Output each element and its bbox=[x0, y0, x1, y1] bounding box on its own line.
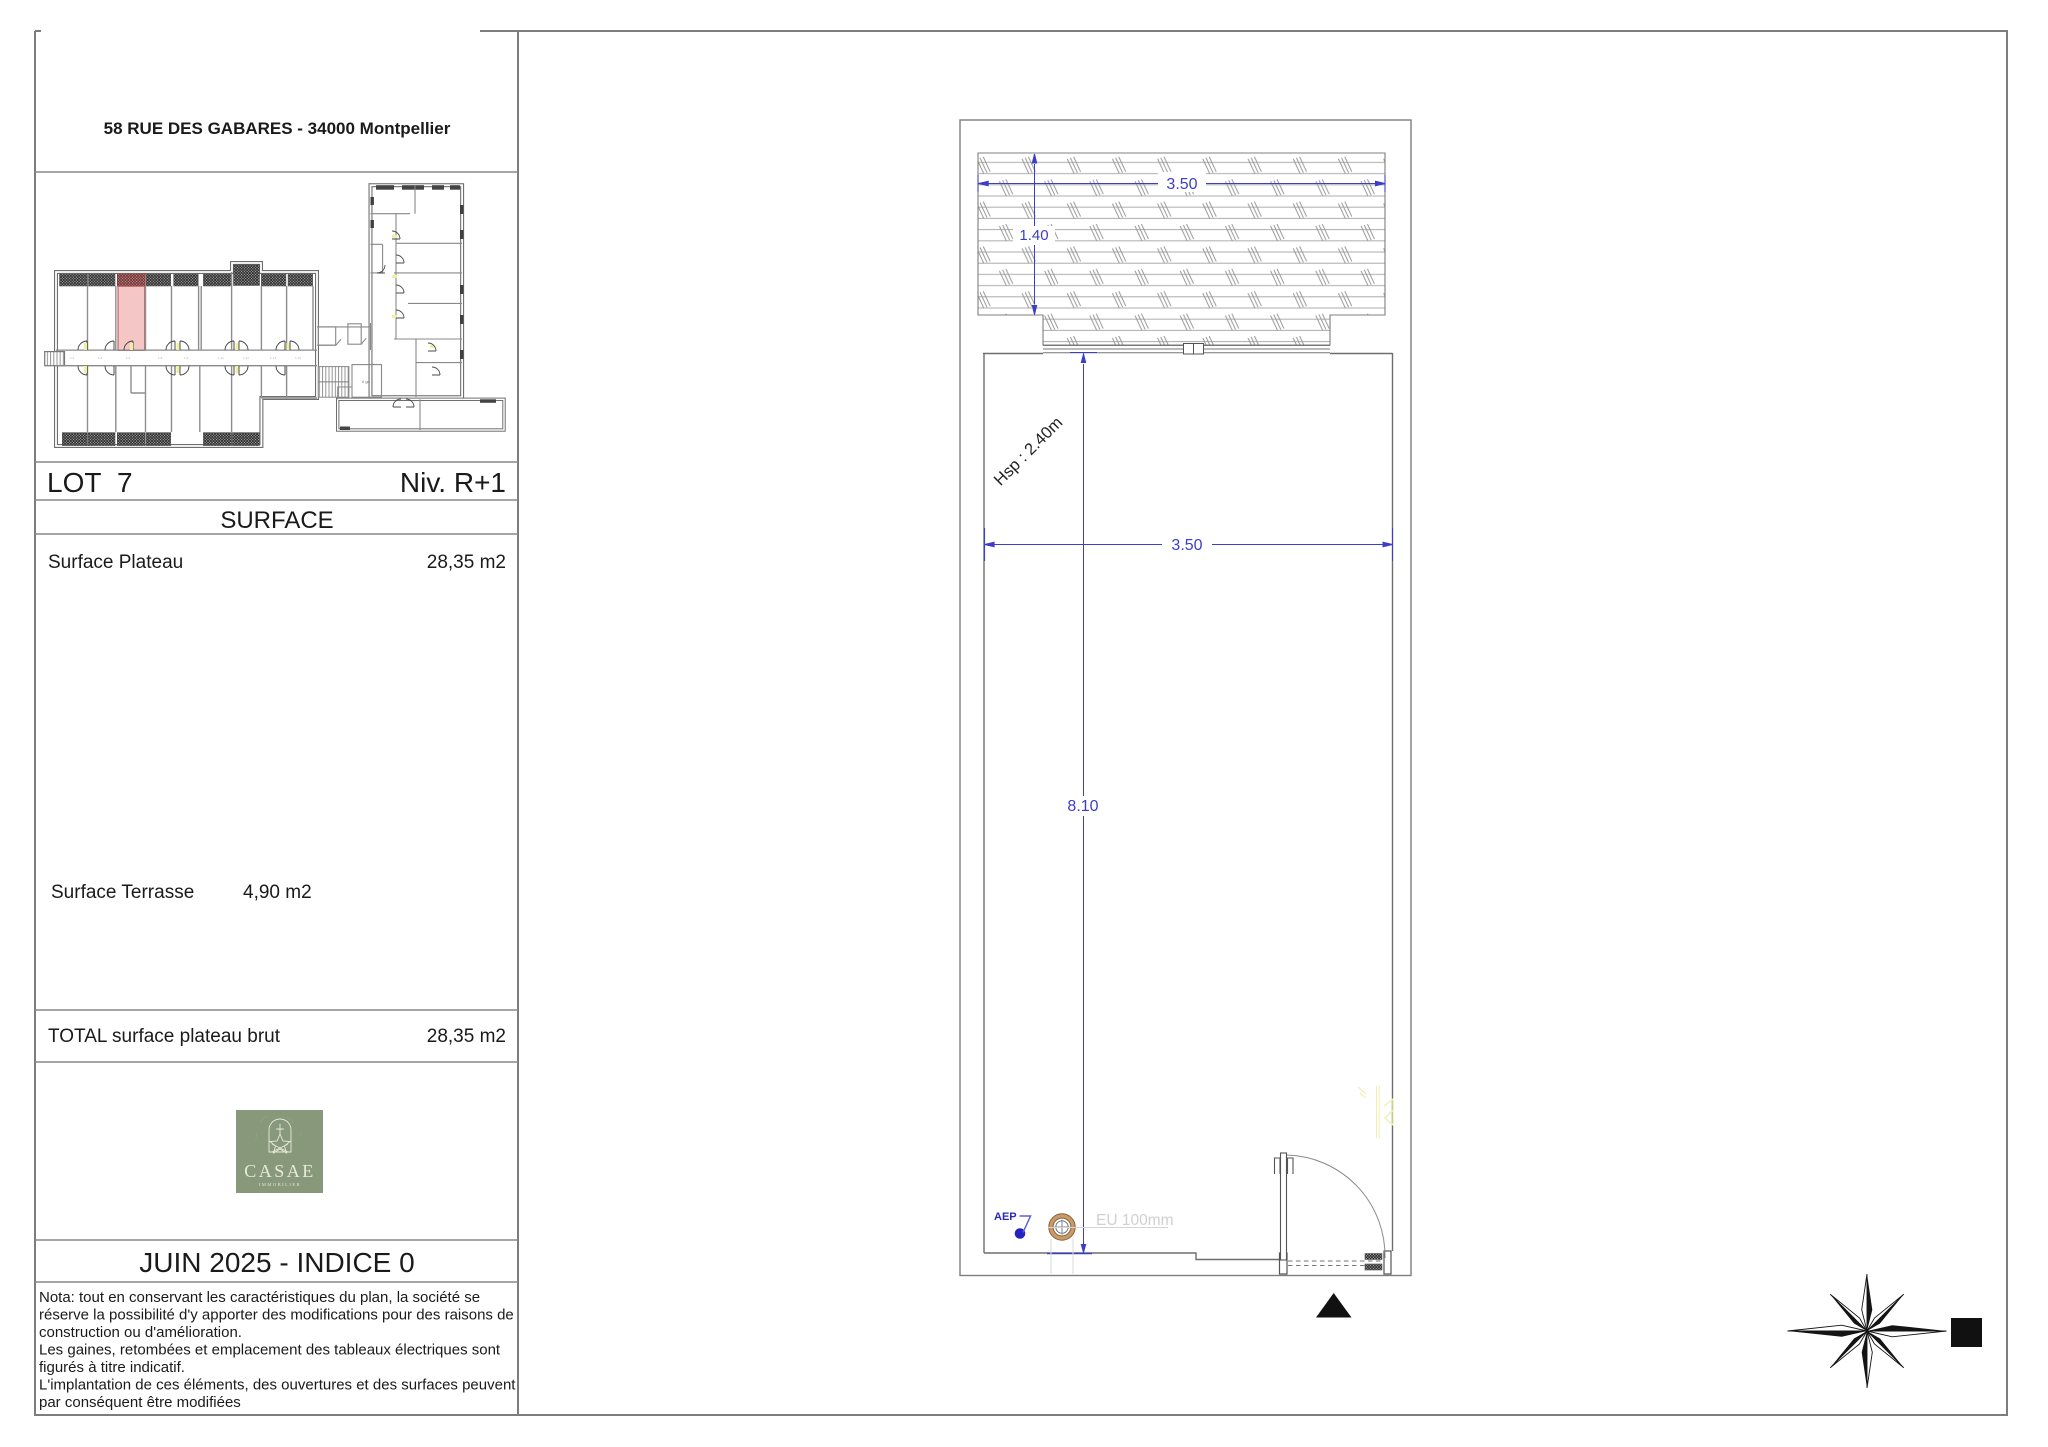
svg-text:1-11: 1-11 bbox=[218, 356, 224, 360]
svg-text:1-4: 1-4 bbox=[70, 356, 75, 360]
svg-text:1-15: 1-15 bbox=[295, 356, 301, 360]
svg-text:JUIN 2025 - INDICE 0: JUIN 2025 - INDICE 0 bbox=[139, 1247, 414, 1278]
svg-text:SURFACE: SURFACE bbox=[220, 507, 333, 534]
svg-text:28,35 m2: 28,35 m2 bbox=[427, 552, 506, 573]
svg-text:TOTAL surface plateau brut: TOTAL surface plateau brut bbox=[48, 1026, 281, 1047]
svg-text:58 RUE DES GABARES - 34000 Mon: 58 RUE DES GABARES - 34000 Montpellier bbox=[104, 119, 451, 138]
svg-text:Surface Plateau: Surface Plateau bbox=[48, 552, 183, 573]
svg-text:Niv. R+1: Niv. R+1 bbox=[400, 467, 506, 498]
svg-text:8.10: 8.10 bbox=[1067, 798, 1098, 815]
svg-text:1-12: 1-12 bbox=[243, 356, 249, 360]
svg-text:Nota: tout en conservant les c: Nota: tout en conservant les caractérist… bbox=[39, 1289, 480, 1306]
svg-text:1-6: 1-6 bbox=[126, 356, 131, 360]
svg-text:réserve la possibilité d'y app: réserve la possibilité d'y apporter des … bbox=[39, 1307, 514, 1324]
svg-text:1-9: 1-9 bbox=[184, 356, 189, 360]
svg-text:28,35 m2: 28,35 m2 bbox=[427, 1026, 506, 1047]
svg-text:3.50: 3.50 bbox=[1171, 537, 1202, 554]
svg-text:figurés à titre indicatif.: figurés à titre indicatif. bbox=[39, 1359, 185, 1376]
svg-text:par conséquent être modifiées: par conséquent être modifiées bbox=[39, 1394, 241, 1411]
svg-text:Les gaines, retombées et empla: Les gaines, retombées et emplacement des… bbox=[39, 1342, 501, 1359]
svg-text:II grt: II grt bbox=[362, 379, 371, 384]
svg-text:1-14: 1-14 bbox=[270, 356, 276, 360]
svg-text:1.40: 1.40 bbox=[1019, 227, 1048, 244]
svg-text:AEP: AEP bbox=[994, 1211, 1017, 1223]
svg-text:L'implantation de ces éléments: L'implantation de ces éléments, des ouve… bbox=[39, 1377, 516, 1394]
svg-text:1-8: 1-8 bbox=[158, 356, 163, 360]
svg-text:3.50: 3.50 bbox=[1166, 176, 1197, 193]
svg-text:Surface Terrasse: Surface Terrasse bbox=[51, 882, 194, 903]
svg-text:EU 100mm: EU 100mm bbox=[1096, 1212, 1174, 1229]
svg-text:construction ou d'amélioration: construction ou d'amélioration. bbox=[39, 1324, 242, 1341]
svg-text:CASAE: CASAE bbox=[244, 1161, 316, 1181]
svg-text:Hsp : 2.40m: Hsp : 2.40m bbox=[991, 414, 1067, 490]
svg-text:1-5: 1-5 bbox=[98, 356, 103, 360]
svg-text:IMMOBILIER: IMMOBILIER bbox=[259, 1182, 301, 1187]
svg-text:LOT 7: LOT 7 bbox=[47, 467, 133, 498]
svg-text:4,90 m2: 4,90 m2 bbox=[243, 882, 312, 903]
